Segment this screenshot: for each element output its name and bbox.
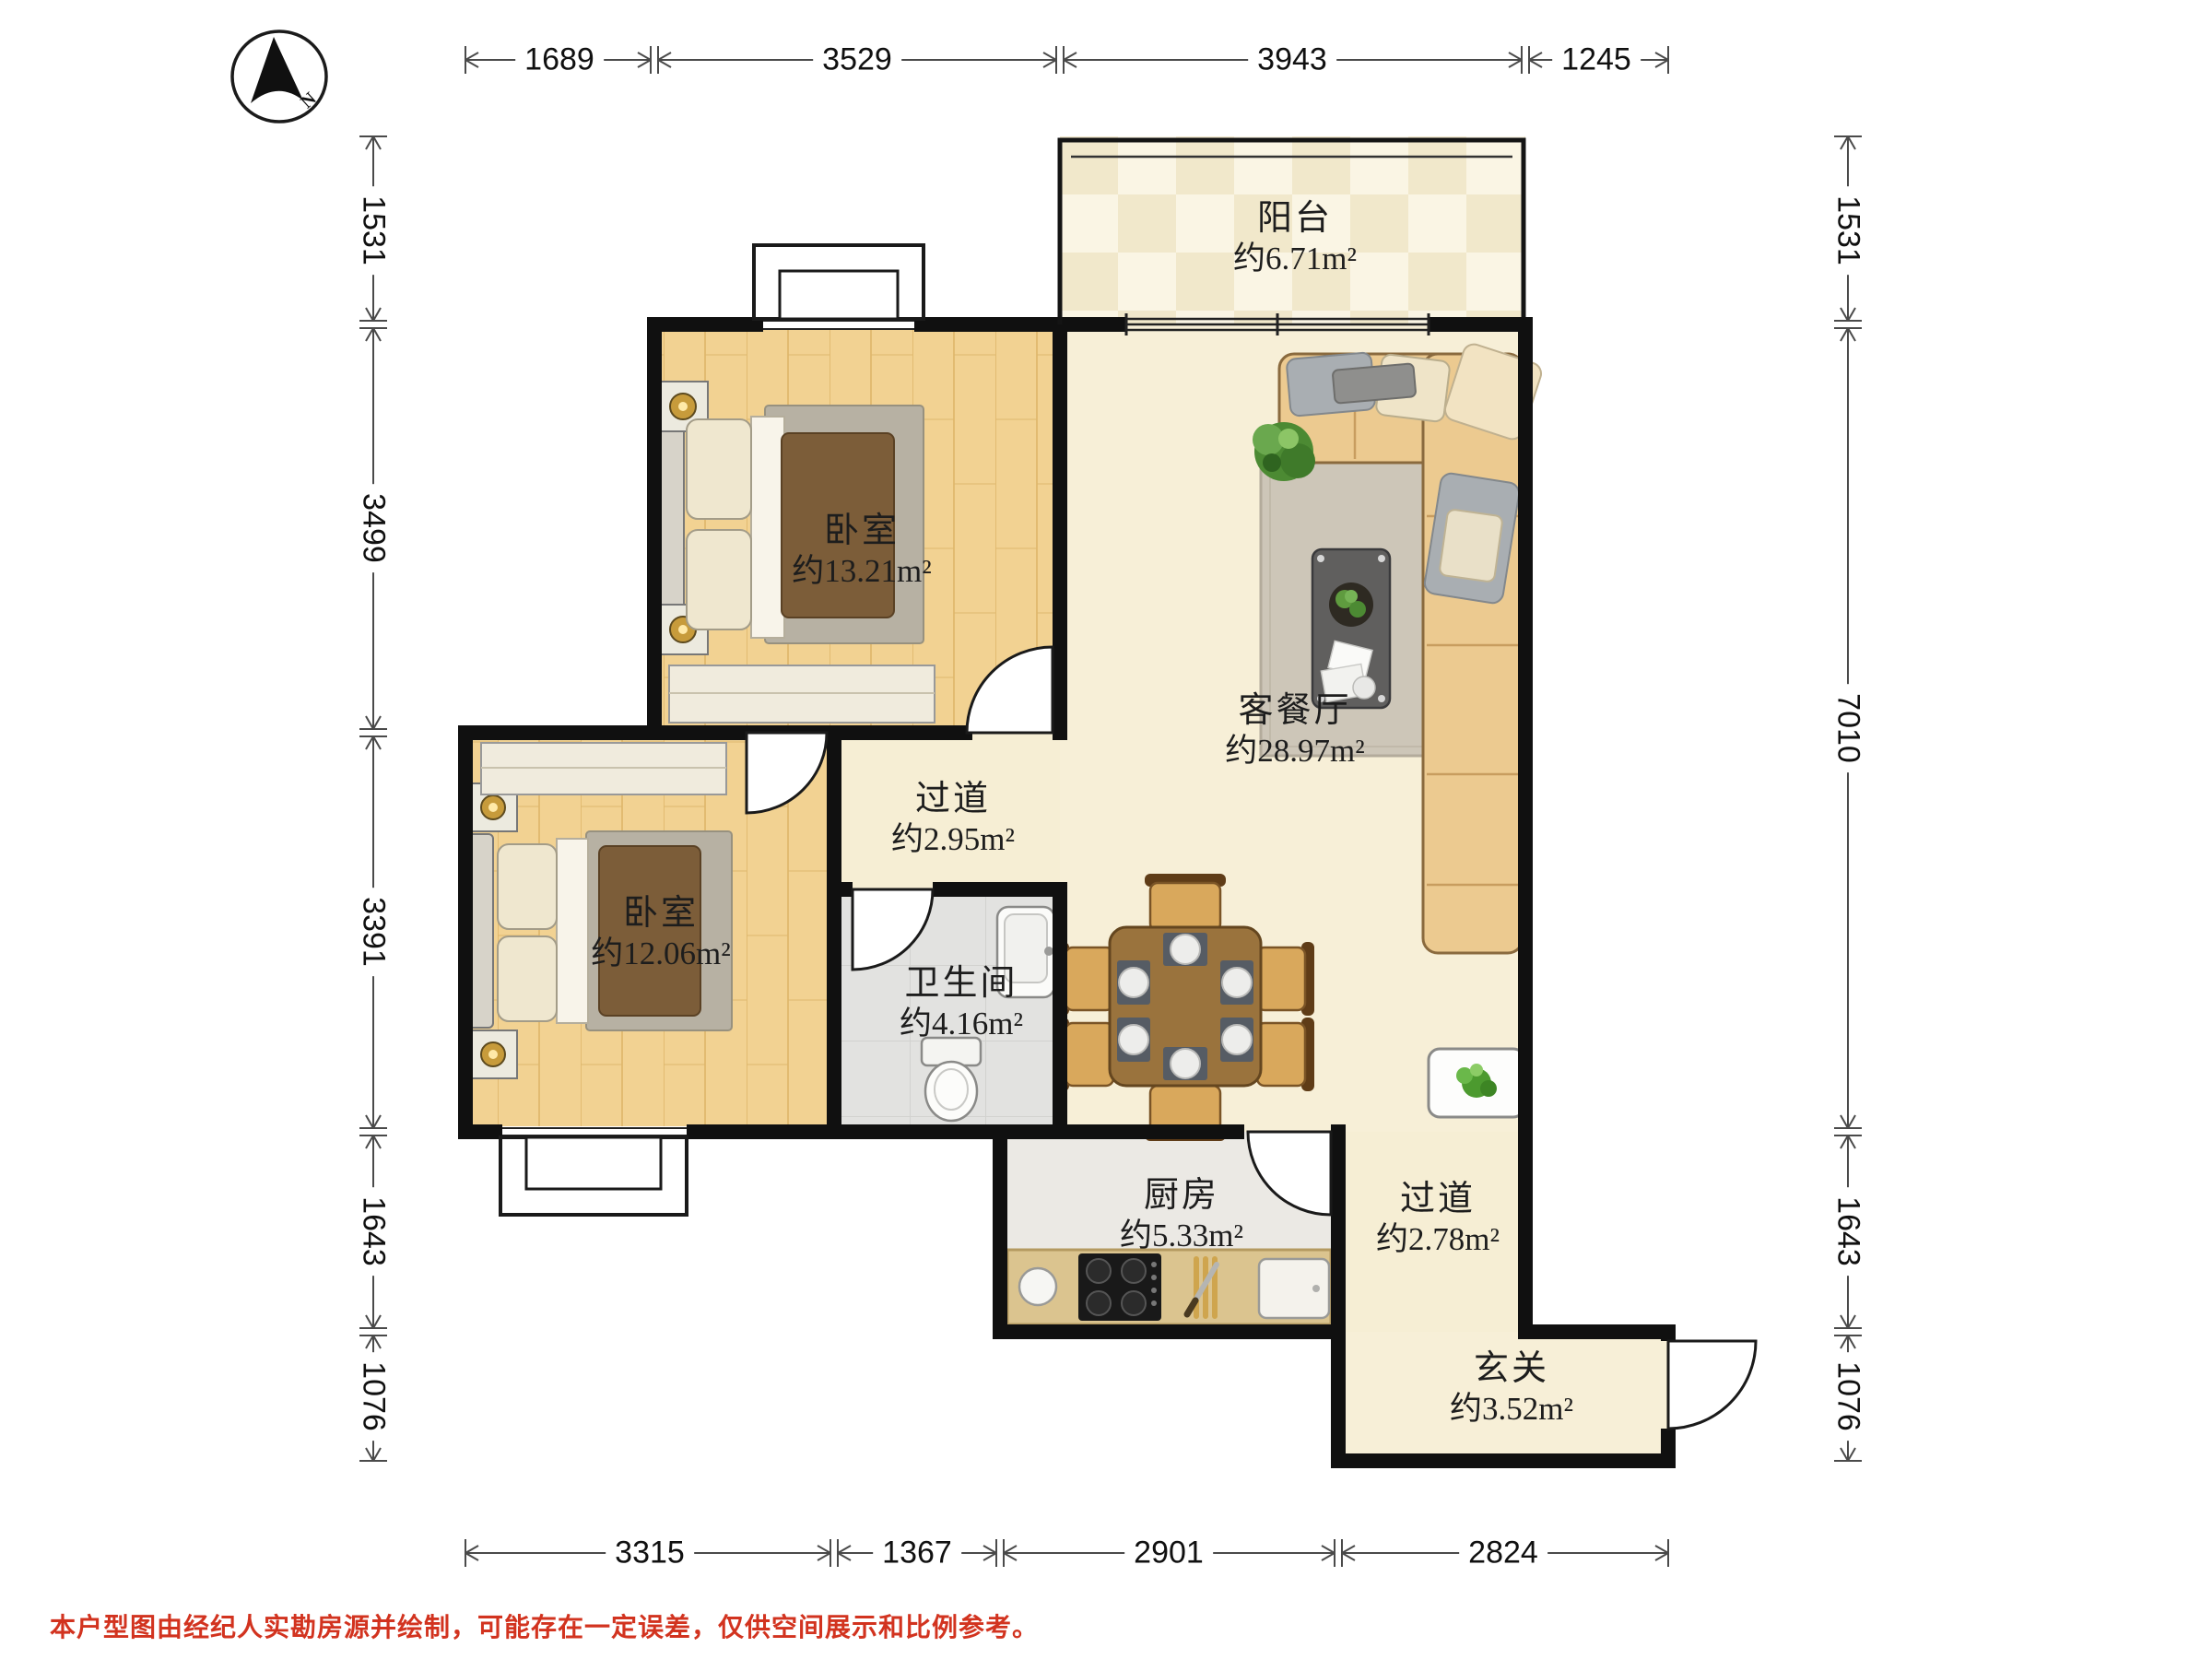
room-name: 过道: [915, 779, 991, 820]
entry-door: [1668, 1341, 1756, 1429]
floor-plan-svg: [0, 0, 2212, 1659]
room-label-bedroom-north: 卧室 约13.21m²: [792, 511, 931, 590]
room-name: 玄关: [1474, 1348, 1549, 1390]
room-area: 约6.71m²: [1233, 240, 1357, 277]
dim-label-bottom-1: 1367: [873, 1535, 961, 1571]
dim-label-bottom-2: 2901: [1124, 1535, 1213, 1571]
bedroom-north-window: [754, 245, 924, 330]
dim-label-right-3: 1076: [1830, 1352, 1866, 1441]
room-label-hallway2: 过道 约2.78m²: [1376, 1179, 1500, 1258]
sofa-tray: [1333, 363, 1417, 404]
dim-label-right-0: 1531: [1830, 186, 1866, 275]
toilet-bowl: [925, 1062, 977, 1121]
planter-box: [1429, 1049, 1524, 1117]
dim-label-left-2: 3391: [356, 888, 392, 976]
room-name: 卧室: [623, 893, 699, 935]
room-area: 约2.78m²: [1376, 1220, 1500, 1258]
dim-label-top-3: 1245: [1552, 42, 1641, 78]
room-name: 卧室: [824, 511, 900, 552]
dim-label-top-2: 3943: [1248, 42, 1336, 78]
room-name: 厨房: [1144, 1175, 1219, 1217]
dim-label-left-1: 3499: [356, 484, 392, 572]
room-label-bedroom-west: 卧室 约12.06m²: [591, 893, 730, 972]
room-name: 卫生间: [904, 963, 1018, 1005]
room-name: 客餐厅: [1238, 690, 1351, 732]
dim-label-left-4: 1076: [356, 1352, 392, 1441]
dim-label-bottom-3: 2824: [1459, 1535, 1547, 1571]
room-label-balcony: 阳台 约6.71m²: [1233, 198, 1357, 277]
dim-label-right-1: 7010: [1830, 684, 1866, 772]
floorplan-page: 阳台 约6.71m² 卧室 约13.21m² 客餐厅 约28.97m² 过道 约…: [0, 0, 2212, 1659]
dim-label-right-2: 1643: [1830, 1187, 1866, 1276]
room-label-entry: 玄关 约3.52m²: [1450, 1348, 1573, 1428]
kitchen-counter: [1007, 1250, 1331, 1324]
room-area: 约5.33m²: [1120, 1217, 1243, 1254]
room-area: 约12.06m²: [591, 935, 730, 972]
room-label-living: 客餐厅 约28.97m²: [1225, 690, 1364, 770]
room-name: 阳台: [1257, 198, 1333, 240]
dim-label-left-3: 1643: [356, 1187, 392, 1276]
room-area: 约3.52m²: [1450, 1390, 1573, 1428]
bedroom-west-window: [500, 1126, 687, 1215]
room-label-hallway: 过道 约2.95m²: [891, 779, 1015, 858]
room-area: 约4.16m²: [900, 1005, 1023, 1042]
room-name: 过道: [1400, 1179, 1476, 1220]
room-area: 约28.97m²: [1225, 732, 1364, 770]
dim-label-left-0: 1531: [356, 186, 392, 275]
kitchen-bowl: [1019, 1268, 1056, 1305]
room-label-kitchen: 厨房 约5.33m²: [1120, 1175, 1243, 1254]
room-area: 约2.95m²: [891, 820, 1015, 858]
dim-label-top-0: 1689: [515, 42, 604, 78]
dim-label-top-1: 3529: [813, 42, 901, 78]
dim-label-bottom-0: 3315: [606, 1535, 694, 1571]
room-label-bathroom: 卫生间 约4.16m²: [900, 963, 1023, 1042]
coffee-table: [1312, 549, 1390, 708]
room-area: 约13.21m²: [792, 552, 931, 590]
disclaimer-text: 本户型图由经纪人实勘房源并绘制，可能存在一定误差，仅供空间展示和比例参考。: [50, 1607, 1039, 1644]
